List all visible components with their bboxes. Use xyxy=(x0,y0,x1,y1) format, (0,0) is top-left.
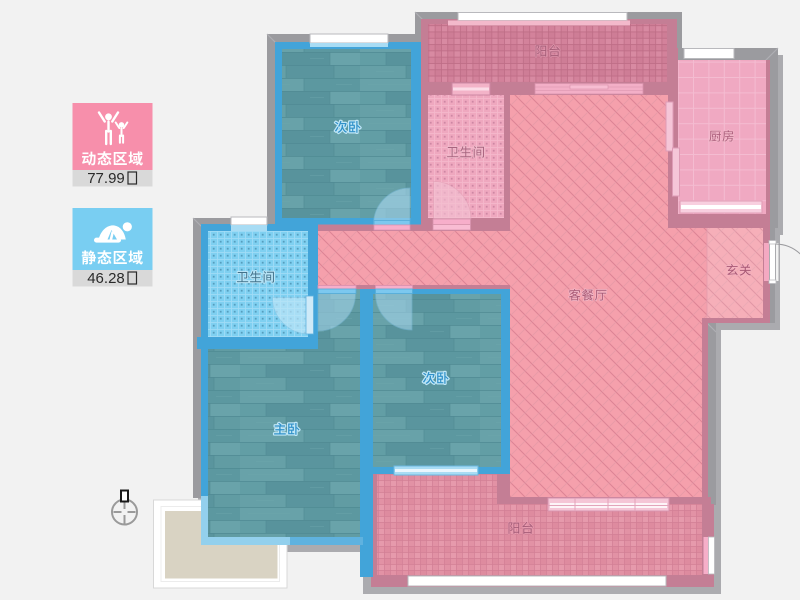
svg-text:77.99: 77.99 xyxy=(87,170,125,187)
svg-text:46.28: 46.28 xyxy=(87,270,125,287)
